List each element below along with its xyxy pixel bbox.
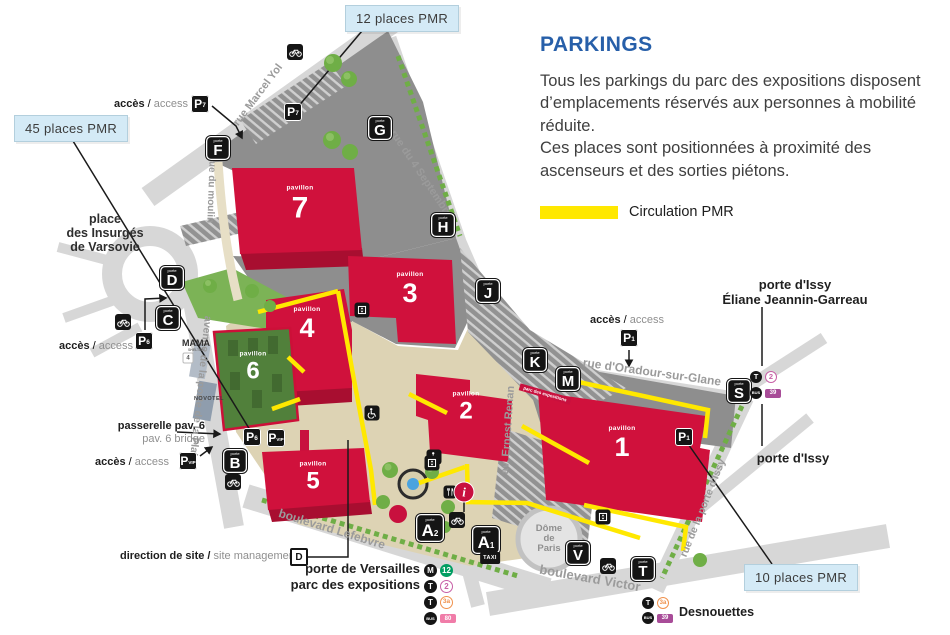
transit-metro-12: M 12 bbox=[424, 564, 453, 577]
transit-bus-80: BUS 80 bbox=[424, 612, 456, 625]
bicycle-icon bbox=[449, 512, 465, 528]
transit-tram-3a: T 3a bbox=[424, 596, 453, 609]
parkings-map-page: PARKINGS Tous les parkings du parc des e… bbox=[0, 0, 950, 635]
parking-icon-p1-pmr: P1 bbox=[675, 428, 693, 446]
callout-45-places-pmr: 45 places PMR bbox=[14, 115, 128, 142]
hotel-stars-badge: 4 bbox=[183, 353, 194, 364]
elevator-icon bbox=[355, 303, 370, 318]
novotel-label: NOVOTEL bbox=[194, 396, 224, 402]
callout-12-places-pmr: 12 places PMR bbox=[345, 5, 459, 32]
taxi-icon: TAXI bbox=[480, 552, 500, 564]
pavilion-2-label: pavillon2 bbox=[453, 391, 480, 423]
gate-marker-m: porteM bbox=[556, 367, 580, 391]
place-des-insurges-label: place des Insurgés de Varsovie bbox=[66, 212, 143, 254]
info-panel: PARKINGS Tous les parkings du parc des e… bbox=[540, 33, 942, 220]
pavilion-5-label: pavillon5 bbox=[300, 461, 327, 493]
transit-bus-39-desnouettes: BUS 39 bbox=[642, 612, 673, 624]
bicycle-icon bbox=[225, 474, 241, 490]
site-management-marker: D bbox=[290, 548, 308, 566]
pavilion-7-label: pavillon7 bbox=[287, 185, 314, 223]
street-rue-du-moulin: rue du moulin bbox=[204, 157, 217, 223]
gate-marker-a1: porteA1 bbox=[472, 526, 500, 554]
transit-tram-2-issy: T 2 bbox=[750, 371, 777, 383]
bicycle-icon bbox=[600, 558, 616, 574]
gate-marker-h: porteH bbox=[431, 213, 455, 237]
gate-marker-k: porteK bbox=[523, 348, 547, 372]
parking-icon-p1-access: P1 bbox=[620, 329, 638, 347]
pavilion-6-label: pavillon6 bbox=[240, 351, 267, 383]
legend: Circulation PMR bbox=[540, 204, 942, 220]
transit-tram-2: T 2 bbox=[424, 580, 453, 593]
callout-10-places-pmr: 10 places PMR bbox=[744, 564, 858, 591]
passerelle-label: passerelle pav. 6 pav. 6 bridge bbox=[85, 420, 205, 446]
gate-marker-f: porteF bbox=[206, 136, 230, 160]
porte-d-issy-label: porte d'Issy bbox=[757, 451, 829, 466]
bicycle-icon bbox=[287, 44, 303, 60]
acces-label-southwest: accès / access bbox=[92, 456, 169, 468]
parking-icon-p6-bridge: P6 bbox=[243, 428, 261, 446]
pavilion-4-label: pavillon4 bbox=[294, 307, 321, 342]
transit-bus-39-issy: BUS 39 bbox=[750, 387, 781, 399]
gate-marker-a2: porteA2 bbox=[416, 514, 444, 542]
gate-marker-b: porteB bbox=[223, 449, 247, 473]
gate-marker-d: porteD bbox=[160, 266, 184, 290]
wheelchair-icon bbox=[365, 406, 380, 421]
transit-tram-3a-desnouettes: T 3a bbox=[642, 597, 669, 609]
elevator-icon bbox=[425, 456, 440, 471]
parking-icon-pvip-bridge: PVIP bbox=[267, 429, 285, 447]
page-title: PARKINGS bbox=[540, 33, 942, 57]
porte-de-versailles-label: porte de Versailles parc des expositions bbox=[262, 561, 420, 593]
pavilion-1-label: pavillon1 bbox=[609, 426, 636, 461]
acces-label-east: accès / access bbox=[590, 314, 668, 326]
parking-icon-pvip-access: PVIP bbox=[179, 452, 197, 470]
gate-marker-g: porteG bbox=[368, 116, 392, 140]
gate-marker-j: porteJ bbox=[476, 279, 500, 303]
parking-icon-p6-access: P6 bbox=[135, 332, 153, 350]
information-point-icon: i bbox=[455, 483, 474, 502]
gate-marker-c: porteC bbox=[156, 306, 180, 330]
gate-marker-t: porteT bbox=[631, 557, 655, 581]
acces-label-west: accès / access bbox=[57, 340, 133, 352]
parking-icon-p7-access: P7 bbox=[191, 95, 209, 113]
legend-label: Circulation PMR bbox=[629, 204, 734, 220]
pavilion-3-label: pavillon3 bbox=[397, 272, 424, 307]
panel-paragraph-1: Tous les parkings du parc des exposition… bbox=[540, 70, 942, 137]
gate-marker-s: porteS bbox=[727, 379, 751, 403]
parking-icon-p7-pmr: P7 bbox=[284, 103, 302, 121]
elevator-icon bbox=[596, 510, 611, 525]
porte-d-issy-eliane-label: porte d'Issy Éliane Jeannin-Garreau bbox=[722, 277, 867, 307]
legend-yellow-swatch bbox=[540, 206, 618, 219]
bicycle-icon bbox=[115, 314, 131, 330]
desnouettes-label: Desnouettes bbox=[679, 605, 754, 619]
gate-marker-v: porteV bbox=[566, 541, 590, 565]
panel-paragraph-2: Ces places sont positionnées à proximité… bbox=[540, 137, 942, 182]
acces-label-north: accès / access bbox=[110, 98, 188, 110]
dome-de-paris-label: Dôme de Paris bbox=[536, 524, 562, 554]
